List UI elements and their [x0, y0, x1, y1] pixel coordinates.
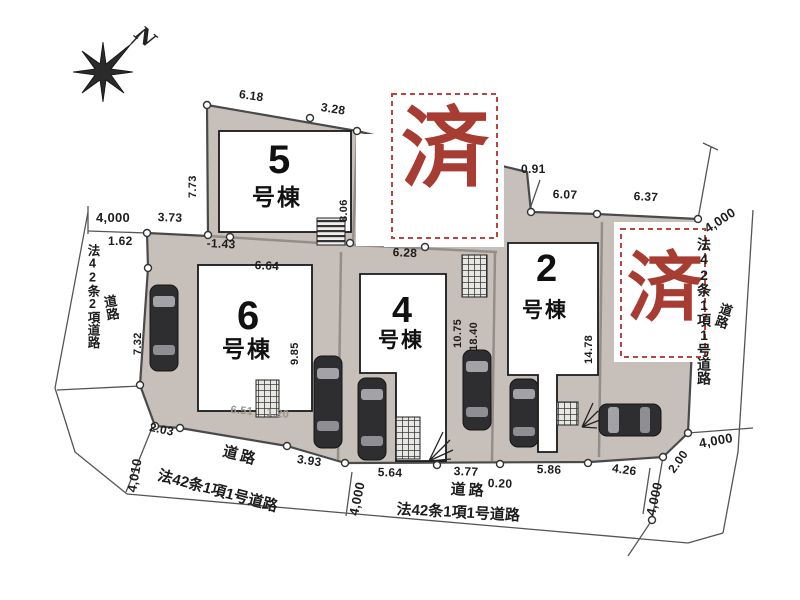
dim-3-73: 3.73 [158, 211, 183, 224]
dim-6-07: 6.07 [553, 188, 578, 201]
porch-grid-icon [557, 402, 578, 425]
car-icon [510, 379, 538, 447]
building-5-number: 5 [268, 140, 290, 180]
dim-1-20: 1.20 [266, 408, 289, 421]
car-icon [314, 356, 342, 448]
road-left-law-label: 法42条2項道路 [86, 244, 99, 349]
dim-9-85: 9.85 [290, 342, 301, 365]
porch-grid-icon [396, 417, 420, 459]
dim-18-40: 18.40 [469, 322, 480, 351]
dim-6-37: 6.37 [633, 190, 658, 203]
car-icon [599, 404, 661, 436]
dim-3-93: 3.93 [296, 453, 322, 468]
dim-1-62: 1.62 [108, 235, 133, 247]
building-2-suffix: 号棟 [522, 300, 568, 321]
building-6-number: 6 [237, 296, 259, 336]
dim-14-78: 14.78 [584, 335, 595, 364]
car-icon [358, 378, 386, 460]
dim-6-18: 6.18 [238, 88, 264, 103]
porch-grid-icon [462, 255, 487, 297]
dim-7-73: 7.73 [188, 175, 199, 198]
building-5-suffix: 号棟 [252, 186, 302, 209]
porch-hatch-icon [317, 218, 345, 245]
road-left-label: 道路 [102, 294, 119, 322]
dim-3-77: 3.77 [454, 465, 479, 478]
dim-3-28: 3.28 [320, 101, 346, 117]
dim-minus-1-43: -1.43 [206, 237, 235, 250]
sold-stamp: 済 [627, 250, 703, 326]
road-right-law-label: 法42条1項1号道路 [697, 237, 711, 385]
dim-5-64: 5.64 [378, 466, 403, 479]
dim-4-26: 4.26 [611, 462, 637, 477]
sold-stamp: 済 [401, 104, 489, 192]
dim-4000-top-left: 4,000 [96, 211, 130, 224]
dim-0-91: 0.91 [521, 163, 546, 175]
dim-6-64: 6.64 [254, 259, 279, 272]
dim-5-86: 5.86 [537, 463, 562, 476]
dim-6-51: 6.51 [230, 405, 253, 418]
car-icon [463, 350, 491, 430]
building-4-suffix: 号棟 [378, 330, 424, 351]
building-4-number: 4 [392, 292, 412, 328]
building-2-number: 2 [536, 250, 557, 288]
car-icon [150, 285, 178, 371]
site-plan: N 5 号棟 6 号棟 4 号棟 2 号棟 済 済 6.18 3.28 7.73… [0, 0, 800, 600]
building-6-suffix: 号棟 [222, 338, 272, 361]
dim-8-06: 8.06 [339, 199, 350, 222]
dim-6-28: 6.28 [392, 246, 417, 259]
road-bottom-center-label: 道路 [450, 482, 487, 499]
dim-0-20: 0.20 [488, 477, 513, 490]
dim-10-75: 10.75 [453, 319, 464, 348]
dim-7-32: 7.32 [133, 332, 144, 355]
